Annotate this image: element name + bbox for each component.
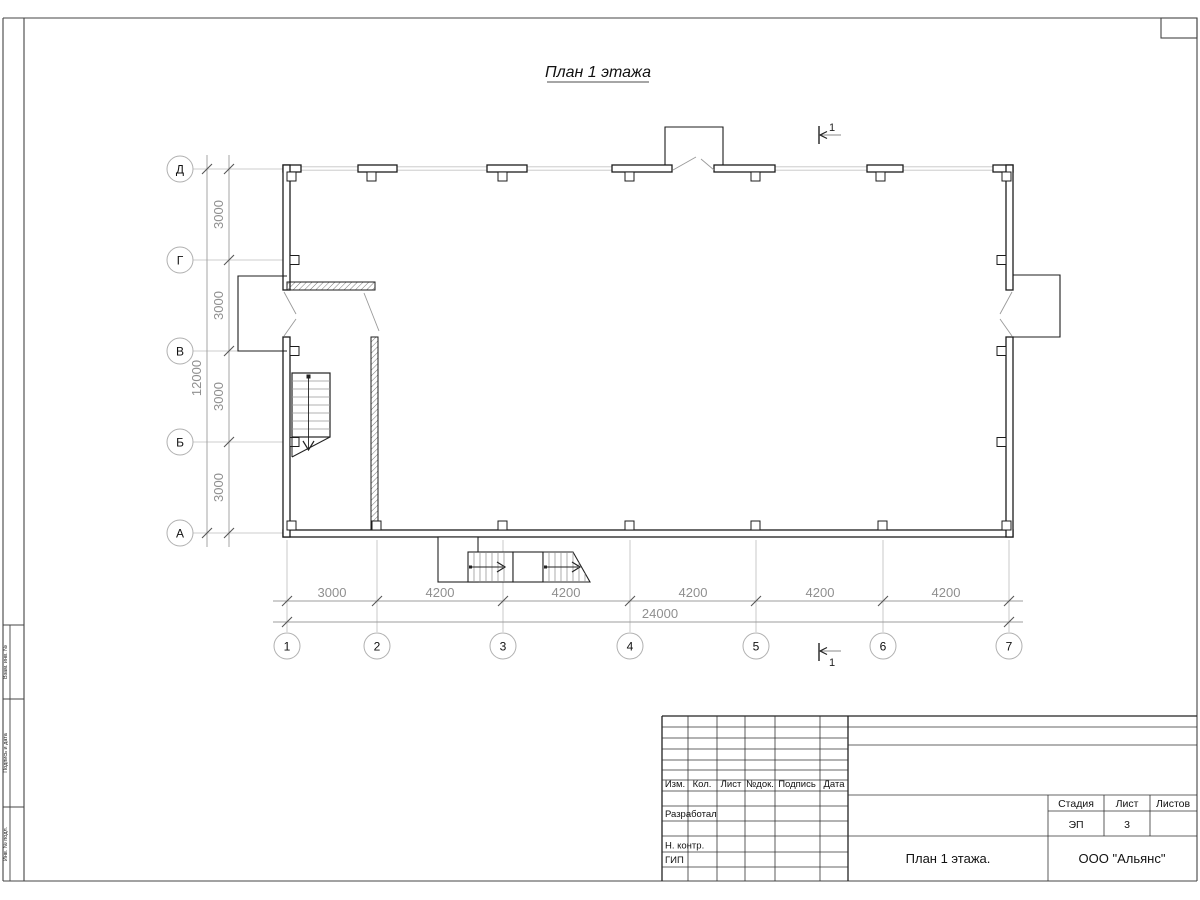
door-leaves — [284, 157, 1012, 336]
dim-total-text: 24000 — [642, 606, 678, 621]
side-stamp-label: Подпись и дата — [3, 732, 9, 772]
left-vestibule — [238, 276, 287, 351]
grid-bubble: Г — [167, 247, 193, 273]
right-vestibule — [1013, 275, 1060, 337]
grid-bubble: Д — [167, 156, 193, 182]
corner-reference-box — [1161, 18, 1197, 38]
sheet-label: Лист — [1116, 798, 1139, 810]
grid-bubble-label: Г — [177, 254, 184, 268]
title-block-col-header: Подпись — [778, 779, 816, 790]
grid-bubble-label: А — [176, 527, 184, 541]
sheet-value: 3 — [1124, 819, 1130, 831]
title-block: Изм. Кол. Лист №док. Подпись Дата Разраб… — [662, 716, 1197, 881]
grid-bubble-label: Б — [176, 436, 184, 450]
side-stamp-label: Инв. № подл. — [3, 826, 9, 861]
title-block-role: Н. контр. — [665, 841, 704, 852]
grid-bubble-label: 2 — [374, 640, 381, 654]
entrance-steps — [438, 537, 590, 582]
top-vestibule — [665, 127, 723, 165]
title-block-role: Разработал — [665, 809, 717, 820]
dim-text: 4200 — [932, 585, 961, 600]
dim-text: 3000 — [318, 585, 347, 600]
title-block-col-header: Изм. — [665, 779, 685, 790]
dim-text: 4200 — [552, 585, 581, 600]
dim-text: 3000 — [211, 200, 226, 229]
section-label: 1 — [829, 122, 835, 134]
grid-bubble: А — [167, 520, 193, 546]
section-label: 1 — [829, 657, 835, 669]
column-axis-bubbles: 1 2 3 4 5 6 7 — [274, 633, 1022, 659]
section-mark-top: 1 — [819, 122, 841, 144]
sheets-label: Листов — [1156, 798, 1191, 810]
grid-bubble: 4 — [617, 633, 643, 659]
grid-bubble-label: 7 — [1006, 640, 1013, 654]
title-block-col-header: Кол. — [693, 779, 712, 790]
vestibules — [238, 127, 1060, 351]
grid-bubble: 5 — [743, 633, 769, 659]
grid-bubble: В — [167, 338, 193, 364]
title-block-col-header: Лист — [721, 779, 742, 790]
title-block-role: ГИП — [665, 855, 684, 866]
exterior-walls — [283, 165, 1013, 537]
grid-bubble-label: 5 — [753, 640, 760, 654]
grid-bubble: 2 — [364, 633, 390, 659]
dim-text: 3000 — [211, 473, 226, 502]
dim-text: 3000 — [211, 291, 226, 320]
pilasters — [287, 172, 1011, 530]
grid-bubble-label: 6 — [880, 640, 887, 654]
grid-bubble: 3 — [490, 633, 516, 659]
bottom-dimensions: 3000 4200 4200 4200 4200 4200 24000 — [273, 585, 1023, 627]
stage-value: ЭП — [1068, 819, 1083, 831]
grid-bubble: 7 — [996, 633, 1022, 659]
stage-label: Стадия — [1058, 798, 1094, 810]
dim-text: 4200 — [679, 585, 708, 600]
title-block-col-header: Дата — [823, 779, 845, 790]
grid-bubble: Б — [167, 429, 193, 455]
dim-text: 3000 — [211, 382, 226, 411]
drawing-title: План 1 этажа — [545, 64, 651, 82]
grid-bubble: 6 — [870, 633, 896, 659]
company-name: ООО "Альянс" — [1079, 851, 1166, 866]
dim-text: 4200 — [806, 585, 835, 600]
row-axis-bubbles: Д Г В Б А — [167, 156, 193, 546]
grid-bubble: 1 — [274, 633, 300, 659]
title-block-col-header: №док. — [746, 779, 774, 790]
grid-bubble-label: 3 — [500, 640, 507, 654]
grid-bubble-label: Д — [176, 163, 184, 177]
drawing-sheet: Взам. инв. № Подпись и дата Инв. № подл.… — [0, 0, 1200, 900]
grid-bubble-label: В — [176, 345, 184, 359]
grid-bubble-label: 1 — [284, 640, 291, 654]
side-stamp-label: Взам. инв. № — [3, 645, 9, 679]
drawing-title-text: План 1 этажа — [545, 64, 651, 81]
side-stamp: Взам. инв. № Подпись и дата Инв. № подл. — [3, 625, 24, 881]
dim-total-text: 12000 — [189, 360, 204, 396]
section-mark-bottom: 1 — [819, 643, 841, 669]
grid-bubble-label: 4 — [627, 640, 634, 654]
dim-text: 4200 — [426, 585, 455, 600]
drawing-name: План 1 этажа. — [906, 851, 991, 866]
